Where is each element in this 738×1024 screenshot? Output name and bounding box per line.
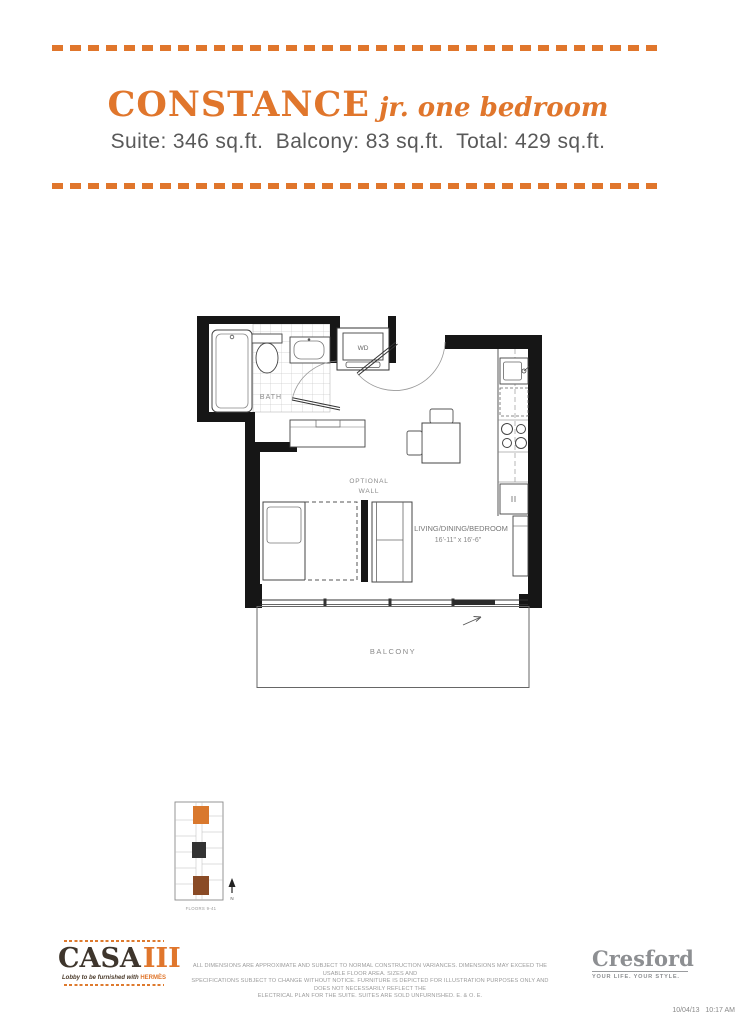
optional-wall-label-2: WALL (359, 488, 380, 495)
casa-logo: CASAIII Lobby to be furnished with HERMÈ… (58, 938, 170, 988)
wd-label: WD (358, 345, 369, 352)
casa-tagline-prefix: Lobby to be furnished with (62, 975, 139, 981)
cooktop (498, 420, 528, 452)
page-title: CONSTANCEjr. one bedroom (52, 84, 664, 125)
dishwasher (500, 388, 528, 416)
dining-table (407, 409, 460, 463)
sliding-door (453, 600, 495, 606)
casa-dash-top (64, 940, 164, 942)
casa-numeral: III (143, 943, 181, 974)
header-dashed-divider (52, 183, 664, 189)
balcony: BALCONY (257, 607, 529, 688)
suite-area-summary: Suite: 346 sq.ft. Balcony: 83 sq.ft. Tot… (52, 130, 664, 154)
window-wall (260, 599, 528, 607)
building-keyplan: N FLOORS 9-41 (170, 796, 254, 914)
living-room-dimensions: 16'-11" x 16'-6" (435, 537, 482, 544)
keyplan-core (192, 842, 206, 858)
floor-plan-drawing: BATH WD (197, 310, 557, 700)
casa-dash-bottom (64, 984, 164, 986)
north-label: N (230, 896, 233, 901)
disclaimer-line-1: ALL DIMENSIONS ARE APPROXIMATE AND SUBJE… (190, 963, 550, 978)
fridge (500, 484, 528, 514)
kitchen (498, 349, 529, 576)
cresford-logo: Cresford YOUR LIFE. YOUR STYLE. (592, 948, 688, 980)
optional-wall-label-1: OPTIONAL (349, 478, 388, 485)
plan-type: jr. one bedroom (379, 93, 608, 123)
balcony-label: BALCONY (370, 647, 416, 656)
bathtub (212, 330, 252, 412)
kitchen-sink (500, 358, 529, 384)
bath-label: BATH (260, 394, 282, 401)
keyplan-highlight-unit (193, 806, 209, 824)
casa-tagline-brand: HERMÈS (140, 975, 166, 981)
hall-closet (290, 420, 365, 447)
disclaimer-line-2: SPECIFICATIONS SUBJECT TO CHANGE WITHOUT… (190, 978, 550, 993)
bed (263, 502, 357, 580)
cresford-tagline: YOUR LIFE. YOUR STYLE. (592, 974, 688, 980)
washer-dryer-closet: WD (337, 328, 389, 370)
tall-cabinet (513, 516, 528, 576)
keyplan-secondary-unit (193, 876, 209, 895)
top-dashed-divider (52, 45, 664, 51)
keyplan-caption: FLOORS 9-41 (186, 906, 217, 911)
balcony-door-arrow (463, 617, 481, 626)
bath-sink (290, 337, 330, 363)
living-room-label: LIVING/DINING/BEDROOM (414, 524, 508, 533)
legal-disclaimer: ALL DIMENSIONS ARE APPROXIMATE AND SUBJE… (190, 963, 550, 1001)
north-arrow-icon: N (229, 878, 236, 901)
plan-name: CONSTANCE (108, 84, 370, 125)
cresford-wordmark: Cresford (592, 948, 688, 972)
casa-tagline: Lobby to be furnished with HERMÈS (58, 974, 170, 982)
floorplan-page: CONSTANCEjr. one bedroom Suite: 346 sq.f… (0, 0, 738, 1024)
sofa (372, 502, 412, 582)
casa-name: CASA (58, 943, 141, 974)
print-timestamp: 10/04/13 10:17 AM (672, 1007, 735, 1014)
disclaimer-line-3: ELECTRICAL PLAN FOR THE SUITE. SUITES AR… (190, 993, 550, 1001)
optional-wall (361, 500, 368, 582)
casa-wordmark: CASAIII (58, 944, 170, 974)
